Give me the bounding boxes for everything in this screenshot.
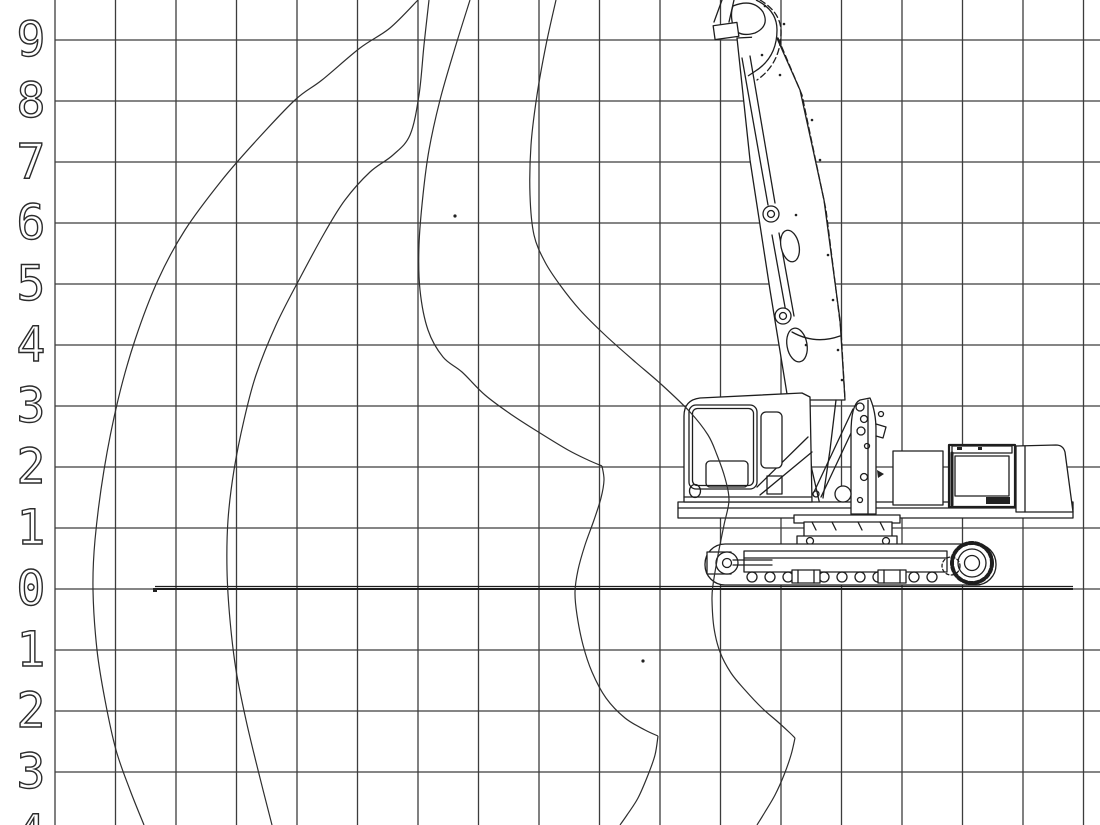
envelope-inner-and-dig-profile: [419, 0, 602, 466]
working-envelope-curves: [93, 0, 795, 825]
y-axis-labels: 98765432101234: [17, 12, 46, 825]
axis-label: 3: [17, 378, 46, 434]
a-frame: [835, 398, 886, 514]
axis-label: 4: [17, 317, 46, 373]
axis-label: 5: [17, 256, 46, 312]
excavator-drawing: [678, 0, 1073, 585]
axis-label: 4: [17, 805, 46, 825]
envelope-outer: [93, 0, 418, 825]
counterweight: [1016, 445, 1073, 512]
axis-label: 1: [17, 622, 46, 678]
axis-label: 9: [17, 12, 46, 68]
envelope-inner-and-dig-profile: [575, 466, 658, 736]
stray-mark: [453, 214, 456, 217]
axis-label: 1: [17, 500, 46, 556]
axis-label: 7: [17, 134, 46, 190]
envelope-inner-and-dig-profile: [620, 736, 658, 825]
tracks: [705, 543, 996, 585]
axis-label: 6: [17, 195, 46, 251]
axis-label: 3: [17, 744, 46, 800]
track-frame: [744, 551, 947, 572]
axis-label: 8: [17, 73, 46, 129]
axis-label: 2: [17, 683, 46, 739]
stray-mark: [641, 659, 644, 662]
envelope-near-machine: [757, 738, 795, 825]
envelope-middle: [227, 0, 429, 825]
grid: [55, 0, 1100, 825]
windshield: [689, 405, 757, 489]
idler-wheel: [716, 552, 738, 574]
swing-pedestal: [794, 515, 900, 545]
cooler-unit: [949, 445, 1015, 507]
working-range-diagram: 98765432101234: [0, 0, 1100, 825]
sprocket: [958, 549, 986, 577]
cab: [684, 393, 812, 502]
axis-label: 2: [17, 439, 46, 495]
ground-line-tick: [153, 588, 157, 592]
axis-label: 0: [17, 561, 46, 617]
rear-window: [761, 412, 782, 468]
diagram-canvas: 98765432101234: [0, 0, 1100, 825]
engine-box: [893, 451, 943, 505]
